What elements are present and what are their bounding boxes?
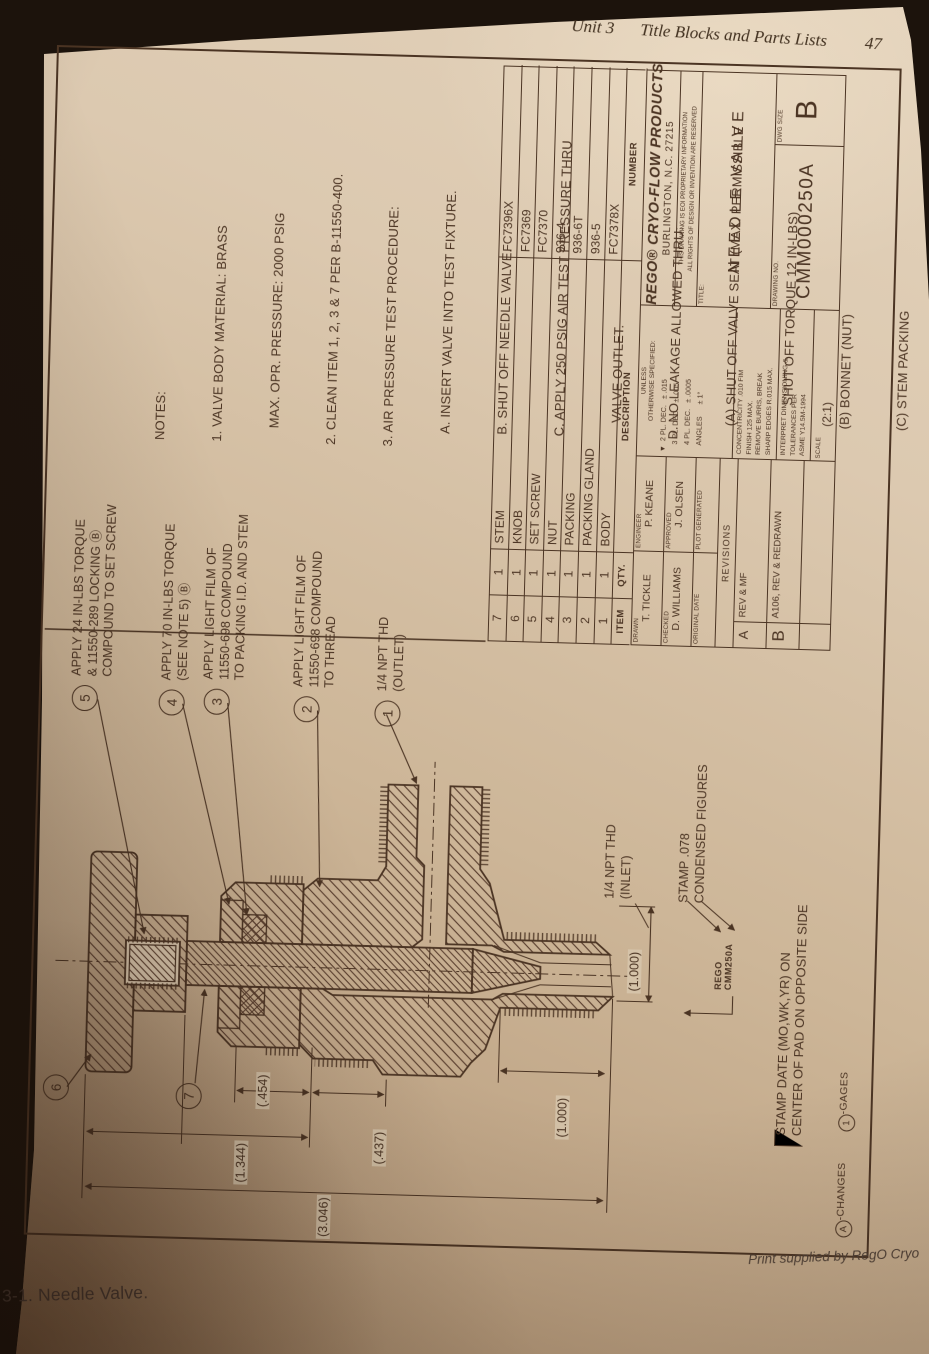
figure-caption: 3-1. Needle Valve. (2, 1282, 149, 1307)
parts-list-table: 71STEMFC7396X 61KNOBFC7369 51SET SCREWFC… (488, 65, 646, 645)
callout-2-text: APPLY LIGHT FILM OF11550-698 COMPOUNDTO … (291, 550, 341, 688)
dim-upper: (1.344) (233, 1141, 248, 1185)
title-block-specs: UNLESS OTHERWISE SPECIFIED: ▼ 2 PL. DEC.… (637, 304, 839, 461)
title-block-identity: REGO® CRYO-FLOW PRODUCTS BURLINGTON, N.C… (641, 70, 845, 309)
dim-inlet-width: (1.000) (627, 950, 642, 994)
changes-legend: A-CHANGES (834, 1162, 848, 1237)
title-block-signatures: DRAWNT. TICKLE ENGINEERP. KEANE CHECKEDD… (631, 455, 834, 649)
tolerance-block: UNLESS OTHERWISE SPECIFIED: ▼ 2 PL. DEC.… (637, 305, 737, 458)
callout-4-text: APPLY 70 IN-LBS TORQUE(SEE NOTE 5) Ⓑ (159, 523, 194, 681)
callout-1-text: 1/4 NPT THD(OUTLET) (375, 617, 408, 692)
stamp-sample: REGOCMM250A (713, 943, 734, 990)
page-number: 47 (864, 33, 882, 53)
book-photo: Unit 3Title Blocks and Parts Lists47 (0, 0, 929, 1354)
drawing-number-cell: DRAWING NO. CMM000250A (771, 144, 844, 310)
inlet-label: 1/4 NPT THD(INLET) (601, 824, 635, 899)
drawing-sheet-frame: NOTES: 1. VALVE BODY MATERIAL: BRASS MAX… (24, 45, 902, 1258)
stamp-date-note: STAMP DATE (MO,WK,YR) ONCENTER OF PAD ON… (773, 904, 811, 1136)
drawing-size-cell: DWG SIZE B (776, 74, 846, 146)
stamp-figures-note: STAMP .078CONDENSED FIGURES (675, 764, 711, 904)
revision-row-empty (799, 461, 834, 650)
drawing-title-cell: TITLE: NEEDLE VALVE (697, 72, 778, 308)
dim-mid: (.437) (372, 1130, 387, 1167)
gages-legend: 1-GAGES (837, 1072, 851, 1132)
title-block: DRAWNT. TICKLE ENGINEERP. KEANE CHECKEDD… (630, 69, 846, 650)
dim-packing: (.454) (255, 1072, 270, 1109)
callout-3-text: APPLY LIGHT FILM OF11550-698 COMPOUNDTO … (201, 513, 252, 680)
drawing-sheet: NOTES: 1. VALVE BODY MATERIAL: BRASS MAX… (24, 45, 903, 1264)
interpret-notes: INTERPRET DIMENSIONING & TOLERANCES PER … (777, 309, 815, 460)
finish-notes: CONCENTRICITY .010 FIM FINISH 125 MAX. R… (733, 308, 781, 459)
revision-row-b: B A106, REV & REDRAWN (766, 460, 804, 649)
dim-lower: (1.000) (555, 1096, 570, 1140)
unit-label: Unit 3 (571, 16, 615, 38)
dim-overall: (3.046) (316, 1195, 331, 1239)
revision-row-a: A REV & MF (733, 459, 771, 648)
callout-5-text: APPLY 24 IN-LBS TORQUE& 11550-289 LOCKIN… (69, 503, 120, 676)
scale-cell: SCALE (2:1) (811, 310, 839, 461)
